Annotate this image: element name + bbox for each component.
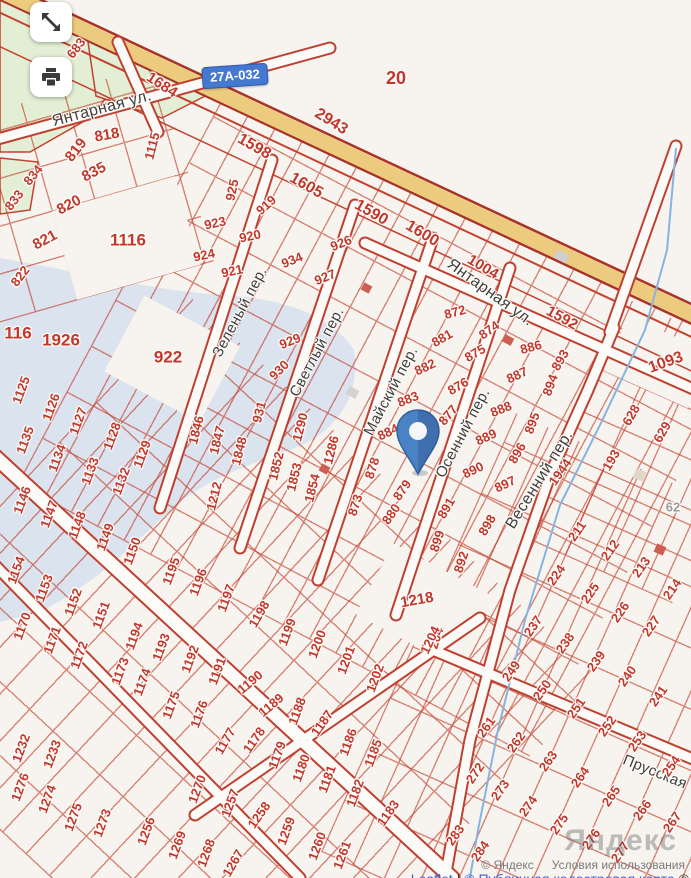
parcel-label[interactable]: 1212 bbox=[204, 480, 224, 511]
parcel-label[interactable]: 1270 bbox=[186, 773, 208, 805]
parcel-label[interactable]: 253 bbox=[625, 728, 648, 753]
parcel-label[interactable]: 818 bbox=[93, 125, 120, 144]
parcel-label[interactable]: 1178 bbox=[241, 725, 268, 756]
parcel-label[interactable]: 1590 bbox=[352, 197, 391, 229]
parcel-label[interactable]: 1200 bbox=[306, 628, 328, 660]
parcel-label[interactable]: 262 bbox=[504, 729, 527, 754]
parcel-label[interactable]: 1187 bbox=[309, 708, 336, 739]
parcel-label[interactable]: 930 bbox=[267, 358, 292, 383]
parcel-label[interactable]: 934 bbox=[280, 250, 305, 270]
leaflet-link[interactable]: Leaflet bbox=[411, 871, 453, 878]
parcel-label[interactable]: 272 bbox=[463, 760, 486, 785]
parcel-label[interactable]: 1592 bbox=[544, 303, 580, 332]
parcel-label[interactable]: 872 bbox=[443, 303, 467, 321]
parcel-label[interactable]: 1944 bbox=[546, 456, 573, 487]
road-badge: 27А-032 bbox=[201, 63, 268, 90]
parcel-label[interactable]: 892 bbox=[451, 550, 470, 575]
parcel-label[interactable]: 822 bbox=[8, 263, 32, 288]
parcel-label[interactable]: 1276 bbox=[9, 771, 31, 803]
parcel-label[interactable]: 1926 bbox=[42, 332, 80, 349]
attribution-separator: | bbox=[457, 871, 461, 878]
parcel-label-layer: 6831684202943159816051590160010041592818… bbox=[0, 0, 691, 878]
parcel-label[interactable]: 875 bbox=[462, 342, 487, 364]
parcel-label[interactable]: 1233 bbox=[41, 738, 63, 770]
parcel-label[interactable]: 879 bbox=[390, 477, 413, 502]
printer-icon bbox=[39, 65, 63, 89]
parcel-label[interactable]: 1193 bbox=[150, 632, 172, 663]
parcel-label[interactable]: 1190 bbox=[235, 668, 265, 696]
parcel-label[interactable]: 224 bbox=[544, 562, 567, 587]
parcel-label[interactable]: 1135 bbox=[14, 425, 36, 456]
parcel-label[interactable]: 628 bbox=[620, 402, 642, 427]
parcel-label[interactable]: 926 bbox=[329, 233, 354, 253]
parcel-label[interactable]: 1854 bbox=[302, 472, 322, 503]
parcel-label[interactable]: 239 bbox=[584, 648, 607, 673]
parcel-label[interactable]: 833 bbox=[2, 187, 26, 212]
parcel-label[interactable]: 1194 bbox=[123, 621, 145, 652]
parcel-label[interactable]: 1232 bbox=[10, 732, 32, 764]
parcel-label[interactable]: 252 bbox=[595, 713, 618, 738]
parcel-label[interactable]: 1259 bbox=[275, 815, 297, 847]
parcel-label[interactable]: 250 bbox=[530, 677, 553, 702]
print-button[interactable] bbox=[30, 57, 72, 97]
parcel-label[interactable]: 888 bbox=[489, 399, 514, 419]
parcel-label[interactable]: 920 bbox=[238, 227, 262, 244]
parcel-label[interactable]: 1605 bbox=[287, 170, 326, 202]
parcel-label[interactable]: 1151 bbox=[90, 600, 112, 631]
parcel-label[interactable]: 1171 bbox=[41, 625, 63, 656]
parcel-label[interactable]: 211 bbox=[566, 519, 589, 544]
yandex-copyright: © Яндекс bbox=[481, 858, 534, 872]
parcel-label[interactable]: 889 bbox=[473, 427, 498, 448]
parcel-label[interactable]: 1269 bbox=[166, 829, 188, 861]
parcel-label[interactable]: 62 bbox=[666, 501, 680, 514]
parcel-label[interactable]: 1256 bbox=[135, 815, 157, 847]
parcel-label[interactable]: 1257 bbox=[219, 787, 241, 819]
parcel-label[interactable]: 1196 bbox=[187, 567, 209, 598]
parcel-label[interactable]: 241 bbox=[646, 683, 669, 708]
parcel-label[interactable]: 1004 bbox=[465, 252, 501, 282]
fullscreen-button[interactable] bbox=[30, 2, 72, 42]
parcel-label[interactable]: 924 bbox=[192, 246, 216, 263]
parcel-label[interactable]: 834 bbox=[21, 163, 45, 188]
parcel-label[interactable]: 251 bbox=[564, 695, 587, 720]
parcel-label[interactable]: 1186 bbox=[337, 727, 359, 758]
parcel-label[interactable]: 213 bbox=[629, 554, 652, 579]
parcel-label[interactable]: 1132 bbox=[110, 466, 132, 497]
parcel-label[interactable]: 240 bbox=[615, 663, 638, 688]
parcel-label[interactable]: 1148 bbox=[66, 510, 88, 541]
parcel-label[interactable]: 1598 bbox=[235, 131, 274, 163]
parcel-label[interactable]: 1260 bbox=[306, 830, 328, 862]
parcel-label[interactable]: 1129 bbox=[131, 439, 153, 470]
parcel-label[interactable]: 1846 bbox=[186, 414, 206, 445]
parcel-label[interactable]: 921 bbox=[220, 262, 244, 279]
parcel-label[interactable]: 876 bbox=[445, 375, 470, 397]
parcel-label[interactable]: 263 bbox=[536, 748, 559, 773]
parcel-label[interactable]: 897 bbox=[492, 474, 517, 495]
parcel-label[interactable]: 1126 bbox=[40, 392, 62, 423]
parcel-label[interactable]: 261 bbox=[474, 714, 497, 739]
parcel-label[interactable]: 1195 bbox=[160, 556, 182, 587]
parcel-label[interactable]: 874 bbox=[476, 318, 501, 341]
parcel-label[interactable]: 1847 bbox=[207, 424, 227, 455]
parcel-label[interactable]: 896 bbox=[506, 440, 528, 465]
yandex-watermark: Яндекс bbox=[564, 824, 677, 858]
parcel-label[interactable]: 1173 bbox=[109, 656, 131, 687]
attribution-links: Leaflet | © Публичная кадастровая карта … bbox=[411, 871, 689, 878]
parcel-label[interactable]: 923 bbox=[203, 214, 227, 231]
parcel-label[interactable]: 116 bbox=[4, 325, 31, 342]
parcel-label[interactable]: 1684 bbox=[144, 70, 180, 101]
parcel-label[interactable]: 886 bbox=[519, 338, 543, 356]
parcel-label[interactable]: 821 bbox=[30, 228, 59, 253]
parcel-label[interactable]: 266 bbox=[630, 797, 653, 822]
parcel-label[interactable]: 1175 bbox=[160, 690, 182, 721]
parcel-label[interactable]: 1128 bbox=[101, 421, 123, 452]
parcel-label[interactable]: 1170 bbox=[11, 611, 33, 642]
parcel-label[interactable]: 273 bbox=[488, 777, 511, 802]
parcel-label[interactable]: 925 bbox=[223, 178, 240, 202]
map-canvas[interactable]: Янтарная ул.Янтарная ул.Зеленый пер.Свет… bbox=[0, 0, 691, 878]
attribution-suffix: © bbox=[679, 871, 689, 878]
parcel-label[interactable]: 1133 bbox=[79, 456, 101, 487]
parcel-label[interactable]: 1179 bbox=[266, 740, 288, 771]
parcel-label[interactable]: 1147 bbox=[38, 499, 60, 530]
parcel-label[interactable]: 835 bbox=[79, 160, 108, 185]
parcel-label[interactable]: 887 bbox=[504, 365, 529, 386]
parcel-label[interactable]: 927 bbox=[313, 267, 338, 287]
parcel-label[interactable]: 1185 bbox=[362, 738, 384, 769]
parcel-label[interactable]: 1181 bbox=[316, 764, 338, 795]
parcel-label[interactable]: 878 bbox=[362, 456, 381, 481]
parcel-label[interactable]: 1268 bbox=[195, 837, 217, 869]
parcel-label[interactable]: 1125 bbox=[10, 375, 32, 406]
parcel-label[interactable]: 193 bbox=[600, 447, 622, 472]
parcel-label[interactable]: 1150 bbox=[121, 536, 143, 567]
parcel-label[interactable]: 819 bbox=[62, 136, 89, 165]
parcel-label[interactable]: 1192 bbox=[179, 644, 201, 675]
attribution-line: © ЯндексУсловия использования bbox=[481, 858, 685, 872]
parcel-label[interactable]: 238 bbox=[553, 630, 576, 655]
parcel-label[interactable]: 1188 bbox=[286, 696, 308, 727]
parcel-label[interactable]: 895 bbox=[522, 411, 542, 436]
parcel-label[interactable]: 249 bbox=[499, 658, 522, 683]
parcel-label[interactable]: 1261 bbox=[331, 839, 353, 871]
parcel-label[interactable]: 1182 bbox=[344, 778, 366, 809]
parcel-label[interactable]: 1197 bbox=[215, 583, 237, 614]
parcel-label[interactable]: 1600 bbox=[403, 218, 442, 250]
parcel-label[interactable]: 881 bbox=[429, 327, 454, 349]
parcel-label[interactable]: 1852 bbox=[266, 450, 286, 481]
parcel-label[interactable]: 1199 bbox=[276, 617, 298, 648]
parcel-label[interactable]: 1127 bbox=[67, 406, 89, 437]
parcel-label[interactable]: 890 bbox=[460, 460, 485, 481]
parcel-label[interactable]: 1116 bbox=[110, 232, 146, 249]
parcel-label[interactable]: 894 bbox=[540, 373, 560, 398]
parcel-label[interactable]: 2943 bbox=[312, 106, 351, 138]
parcel-label[interactable]: 891 bbox=[435, 495, 457, 520]
pkk-link[interactable]: © Публичная кадастровая карта bbox=[464, 871, 675, 878]
parcel-label[interactable]: 1149 bbox=[94, 522, 116, 553]
parcel-label[interactable]: 254 bbox=[659, 753, 682, 778]
parcel-label[interactable]: 1202 bbox=[364, 662, 386, 694]
parcel-label[interactable]: 1218 bbox=[399, 590, 434, 611]
parcel-label[interactable]: 1180 bbox=[290, 753, 312, 784]
parcel-label[interactable]: 265 bbox=[599, 783, 622, 808]
parcel-label[interactable]: 1273 bbox=[91, 807, 113, 839]
parcel-label[interactable]: 20 bbox=[386, 69, 406, 87]
parcel-label[interactable]: 873 bbox=[345, 493, 364, 518]
parcel-label[interactable]: 1290 bbox=[290, 411, 310, 442]
parcel-label[interactable]: 237 bbox=[521, 613, 544, 638]
parcel-label[interactable]: 931 bbox=[250, 400, 268, 424]
parcel-label[interactable]: 1154 bbox=[5, 555, 27, 586]
location-marker[interactable] bbox=[394, 407, 442, 479]
parcel-label[interactable]: 1189 bbox=[256, 691, 286, 719]
parcel-label[interactable]: 1176 bbox=[188, 699, 210, 730]
terms-of-use-link[interactable]: Условия использования bbox=[552, 858, 685, 872]
parcel-label[interactable]: 212 bbox=[598, 537, 621, 562]
expand-arrows-icon bbox=[39, 10, 63, 34]
parcel-label[interactable]: 1115 bbox=[142, 131, 161, 161]
parcel-label[interactable]: 1146 bbox=[11, 485, 33, 516]
parcel-label[interactable]: 1201 bbox=[335, 644, 357, 676]
parcel-label[interactable]: 226 bbox=[608, 599, 631, 624]
parcel-label[interactable]: 1191 bbox=[206, 656, 228, 687]
parcel-label[interactable]: 1152 bbox=[62, 587, 84, 618]
parcel-label[interactable]: 898 bbox=[476, 512, 498, 537]
parcel-label[interactable]: 1198 bbox=[246, 599, 271, 630]
parcel-label[interactable]: 1177 bbox=[212, 726, 237, 757]
parcel-label[interactable]: 214 bbox=[660, 576, 683, 601]
parcel-label[interactable]: 1275 bbox=[62, 801, 84, 833]
parcel-label[interactable]: 1258 bbox=[245, 799, 272, 830]
parcel-label[interactable]: 1267 bbox=[220, 847, 246, 878]
parcel-label[interactable]: 1848 bbox=[229, 435, 249, 466]
parcel-label[interactable]: 1134 bbox=[46, 443, 68, 474]
parcel-label[interactable]: 264 bbox=[568, 764, 591, 789]
parcel-label[interactable]: 1853 bbox=[284, 461, 304, 492]
parcel-label[interactable]: 629 bbox=[651, 419, 673, 444]
parcel-label[interactable]: 899 bbox=[427, 529, 446, 554]
parcel-label[interactable]: 919 bbox=[254, 193, 279, 217]
parcel-label[interactable]: 1183 bbox=[375, 798, 402, 829]
parcel-label[interactable]: 1153 bbox=[33, 573, 55, 604]
parcel-label[interactable]: 820 bbox=[54, 193, 83, 218]
parcel-label[interactable]: 1172 bbox=[68, 640, 90, 671]
parcel-label[interactable]: 274 bbox=[516, 793, 539, 818]
parcel-label[interactable]: 882 bbox=[412, 357, 437, 378]
parcel-label[interactable]: 880 bbox=[379, 501, 402, 526]
parcel-label[interactable]: 1286 bbox=[321, 434, 341, 465]
parcel-label[interactable]: 922 bbox=[154, 349, 182, 366]
parcel-label[interactable]: 1093 bbox=[647, 349, 686, 376]
parcel-label[interactable]: 893 bbox=[549, 347, 571, 372]
parcel-label[interactable]: 1174 bbox=[131, 667, 153, 698]
parcel-label[interactable]: 227 bbox=[639, 613, 662, 638]
parcel-label[interactable]: 929 bbox=[278, 331, 303, 351]
parcel-label[interactable]: 1274 bbox=[36, 783, 58, 815]
parcel-label[interactable]: 225 bbox=[578, 580, 601, 605]
parcel-label[interactable]: 283 bbox=[443, 822, 466, 847]
